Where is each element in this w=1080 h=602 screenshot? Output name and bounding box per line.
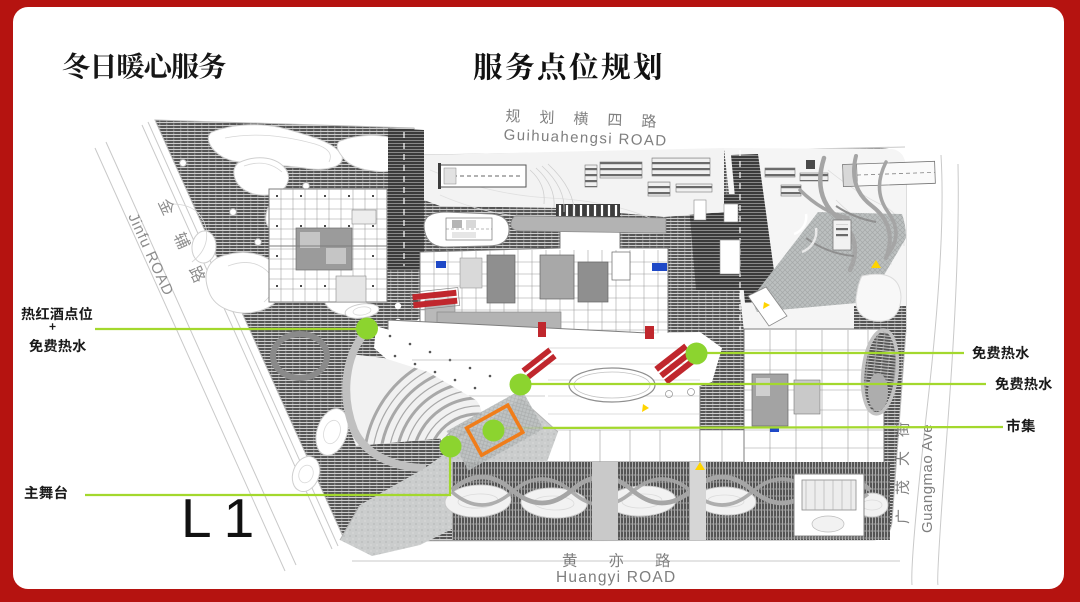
svg-text:L1: L1 <box>181 487 266 549</box>
svg-text:Huangyi ROAD: Huangyi ROAD <box>556 569 676 586</box>
svg-text:Guangmao Ave: Guangmao Ave <box>919 424 936 533</box>
